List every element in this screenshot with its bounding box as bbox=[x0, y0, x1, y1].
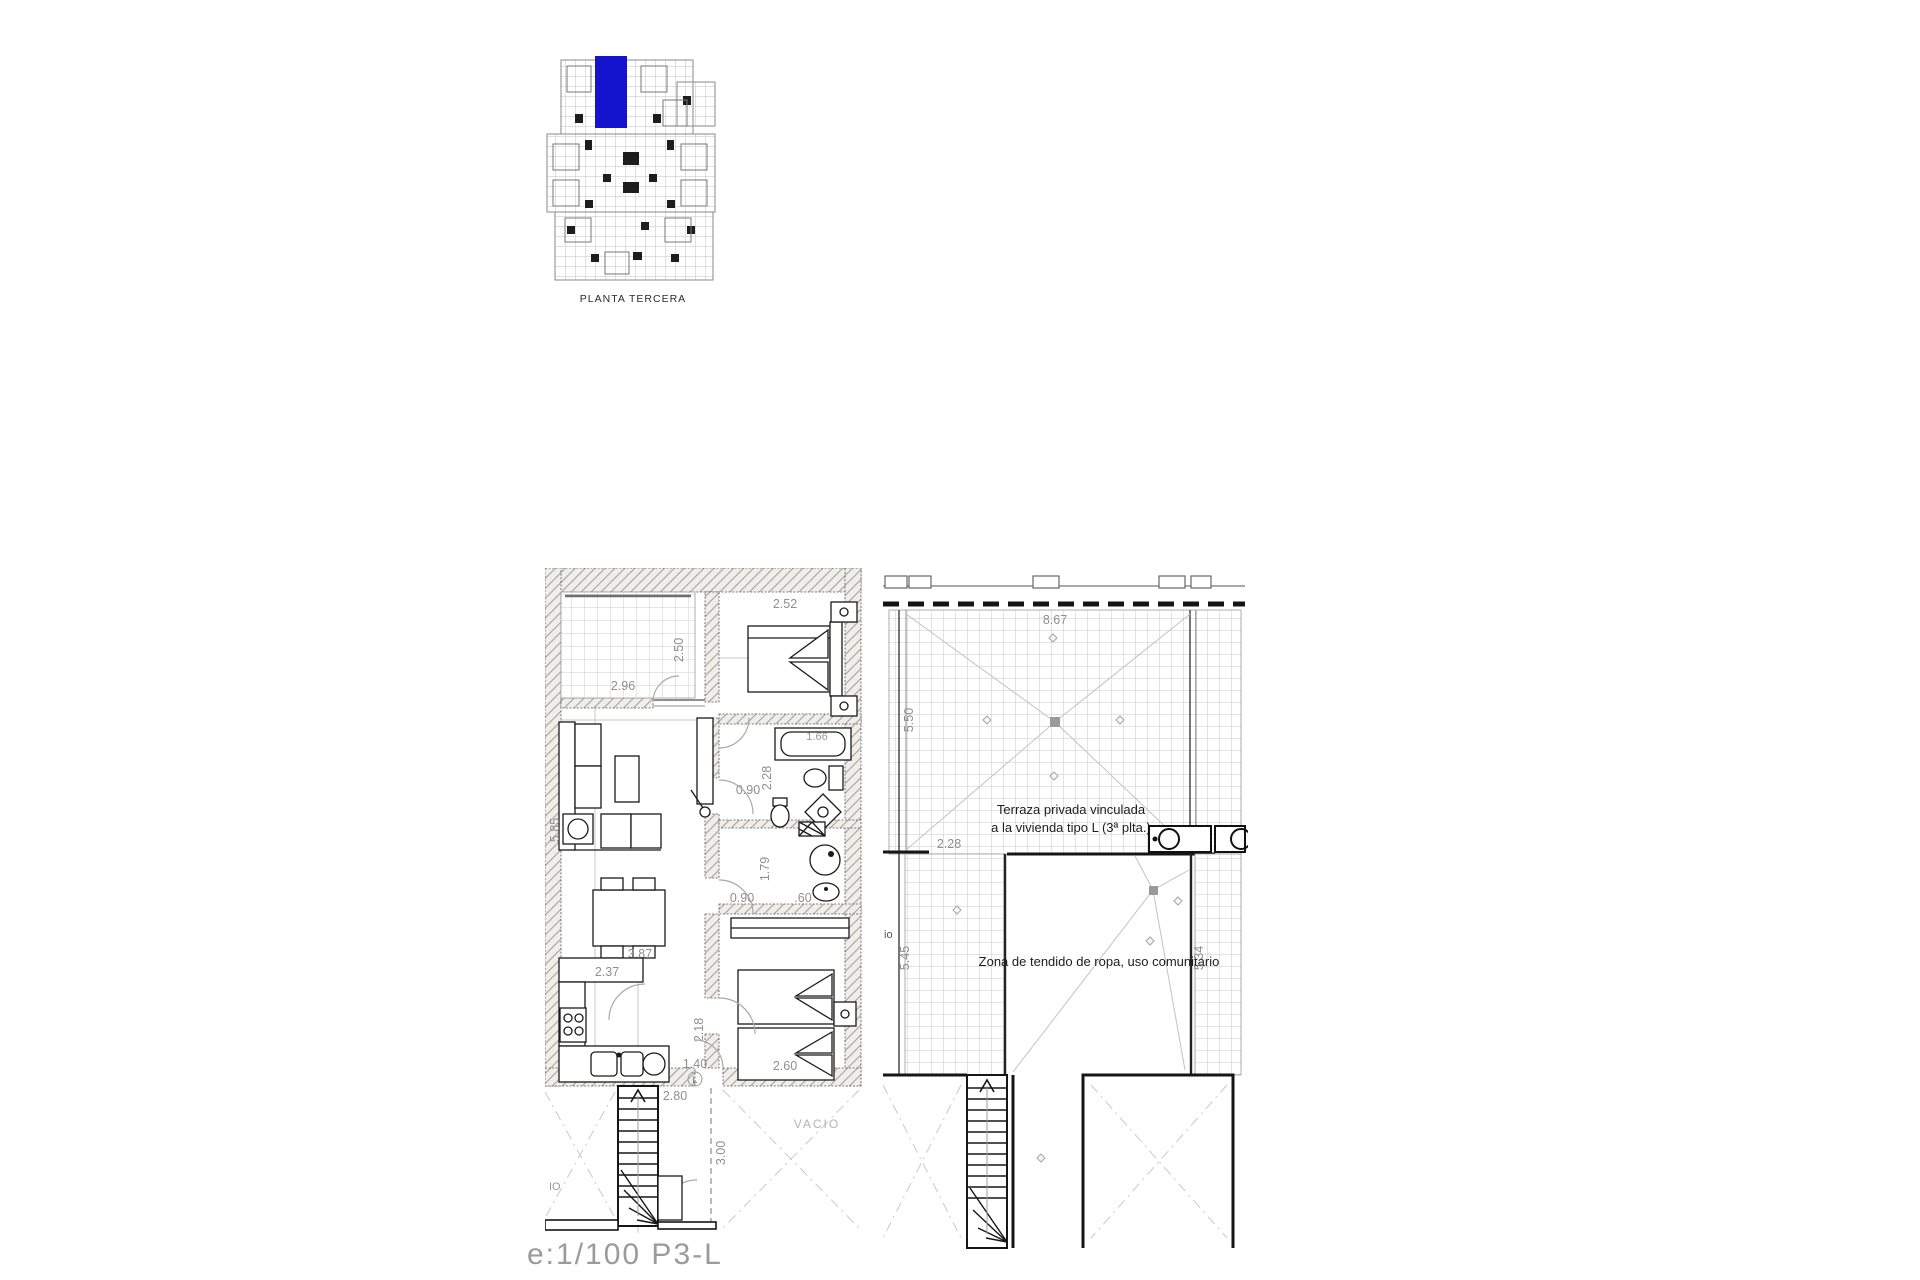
nightstand bbox=[831, 602, 857, 622]
dim-terrace-width: 8.67 bbox=[1043, 613, 1067, 627]
dim-door-top: 0.90 bbox=[736, 783, 760, 797]
apartment-plan: 2.96 2.50 2.52 1.66 bbox=[545, 568, 867, 1260]
dim-stair-width: 2.80 bbox=[663, 1089, 687, 1103]
lower-terrace: Zona de tendido de ropa, uso comunitario… bbox=[884, 854, 1241, 1075]
staircase bbox=[618, 1086, 682, 1226]
bottom-section bbox=[883, 1075, 1233, 1248]
void-label-clipped: IO bbox=[549, 1181, 561, 1193]
single-bed-1 bbox=[738, 970, 834, 1024]
kitchen: 2.37 bbox=[559, 958, 669, 1082]
dim-door-bottom: 0.90 bbox=[730, 891, 754, 905]
dim-bedroom1-width: 2.52 bbox=[773, 597, 797, 611]
dim-bath2-depth: 1.79 bbox=[758, 857, 772, 881]
cooktop bbox=[560, 1008, 586, 1042]
bedroom1: 2.52 bbox=[748, 597, 857, 716]
terrace-room: 2.96 2.50 bbox=[561, 592, 695, 698]
scale-label: e:1/100 P3-L bbox=[527, 1238, 723, 1272]
dim-terrace-width: 2.96 bbox=[611, 679, 635, 693]
dim-stair-depth: 3.00 bbox=[714, 1141, 728, 1165]
unit-letter: L bbox=[692, 1075, 697, 1085]
dim-hall-depth: 2.18 bbox=[692, 1018, 706, 1042]
drain-icon bbox=[1050, 717, 1060, 727]
dim-bath1-depth: 2.28 bbox=[760, 766, 774, 790]
key-plan: PLANTA TERCERA bbox=[545, 56, 725, 312]
private-terrace-note-line2: a la vivienda tipo L (3ª plta.) bbox=[991, 820, 1151, 835]
staircase bbox=[967, 1075, 1007, 1248]
dim-terrace-depth-upper: 5.50 bbox=[902, 708, 916, 732]
dim-terrace-depth: 2.50 bbox=[672, 638, 686, 662]
double-bed bbox=[748, 622, 842, 696]
dim-depth-right: 5.34 bbox=[1192, 946, 1206, 970]
drain-icon bbox=[1149, 886, 1158, 895]
wardrobe bbox=[731, 918, 849, 938]
kitchen-sink bbox=[591, 1052, 665, 1076]
dim-depth-left: 5.45 bbox=[898, 946, 912, 970]
key-plan-label: PLANTA TERCERA bbox=[580, 293, 686, 305]
highlighted-unit bbox=[595, 56, 627, 128]
key-plan-building bbox=[547, 56, 715, 280]
dim-shower: .60 bbox=[794, 891, 811, 905]
private-terrace-note-line1: Terraza privada vinculada bbox=[997, 802, 1146, 817]
bathroom1: 1.66 2.28 0.90 bbox=[736, 728, 851, 830]
void-room bbox=[1083, 1075, 1233, 1248]
coffee-table bbox=[615, 756, 639, 802]
void-areas: VACIO 2.80 3.00 IO bbox=[545, 1088, 859, 1230]
dim-living-depth: 5.85 bbox=[548, 818, 562, 842]
shower-basin bbox=[810, 845, 840, 875]
dim-bathtub: 1.66 bbox=[806, 731, 827, 743]
side-table bbox=[563, 814, 593, 844]
nightstand bbox=[834, 1002, 856, 1026]
tv-unit bbox=[691, 718, 713, 817]
sink bbox=[813, 883, 839, 901]
dim-entry: 1.40 bbox=[683, 1057, 707, 1071]
clipped-label: io bbox=[884, 929, 893, 941]
bathroom2: 1.79 0.90 .60 bbox=[730, 845, 840, 905]
void-left bbox=[883, 1085, 961, 1238]
laundry-zone-note: Zona de tendido de ropa, uso comunitario bbox=[979, 954, 1220, 969]
bedroom2: 2.60 bbox=[731, 918, 856, 1080]
terrace-plan: 8.67 5.50 2.28 Terraza privada vinculada… bbox=[883, 570, 1248, 1262]
dining-table bbox=[593, 878, 665, 958]
bidet bbox=[771, 798, 789, 827]
nightstand bbox=[831, 696, 857, 716]
drain-icon bbox=[1037, 1154, 1045, 1162]
dim-kitchen-width: 2.37 bbox=[595, 965, 619, 979]
railing-detail bbox=[1149, 826, 1248, 852]
dim-terrace-inner: 2.28 bbox=[937, 837, 961, 851]
facade bbox=[883, 576, 1245, 588]
washing-machine bbox=[799, 822, 825, 836]
upper-terrace: 8.67 5.50 2.28 Terraza privada vinculada… bbox=[889, 610, 1241, 854]
void-label: VACIO bbox=[794, 1117, 840, 1131]
dim-bedroom2-width: 2.60 bbox=[773, 1059, 797, 1073]
living-room: 5.85 3.87 bbox=[548, 718, 713, 961]
toilet bbox=[804, 766, 843, 790]
